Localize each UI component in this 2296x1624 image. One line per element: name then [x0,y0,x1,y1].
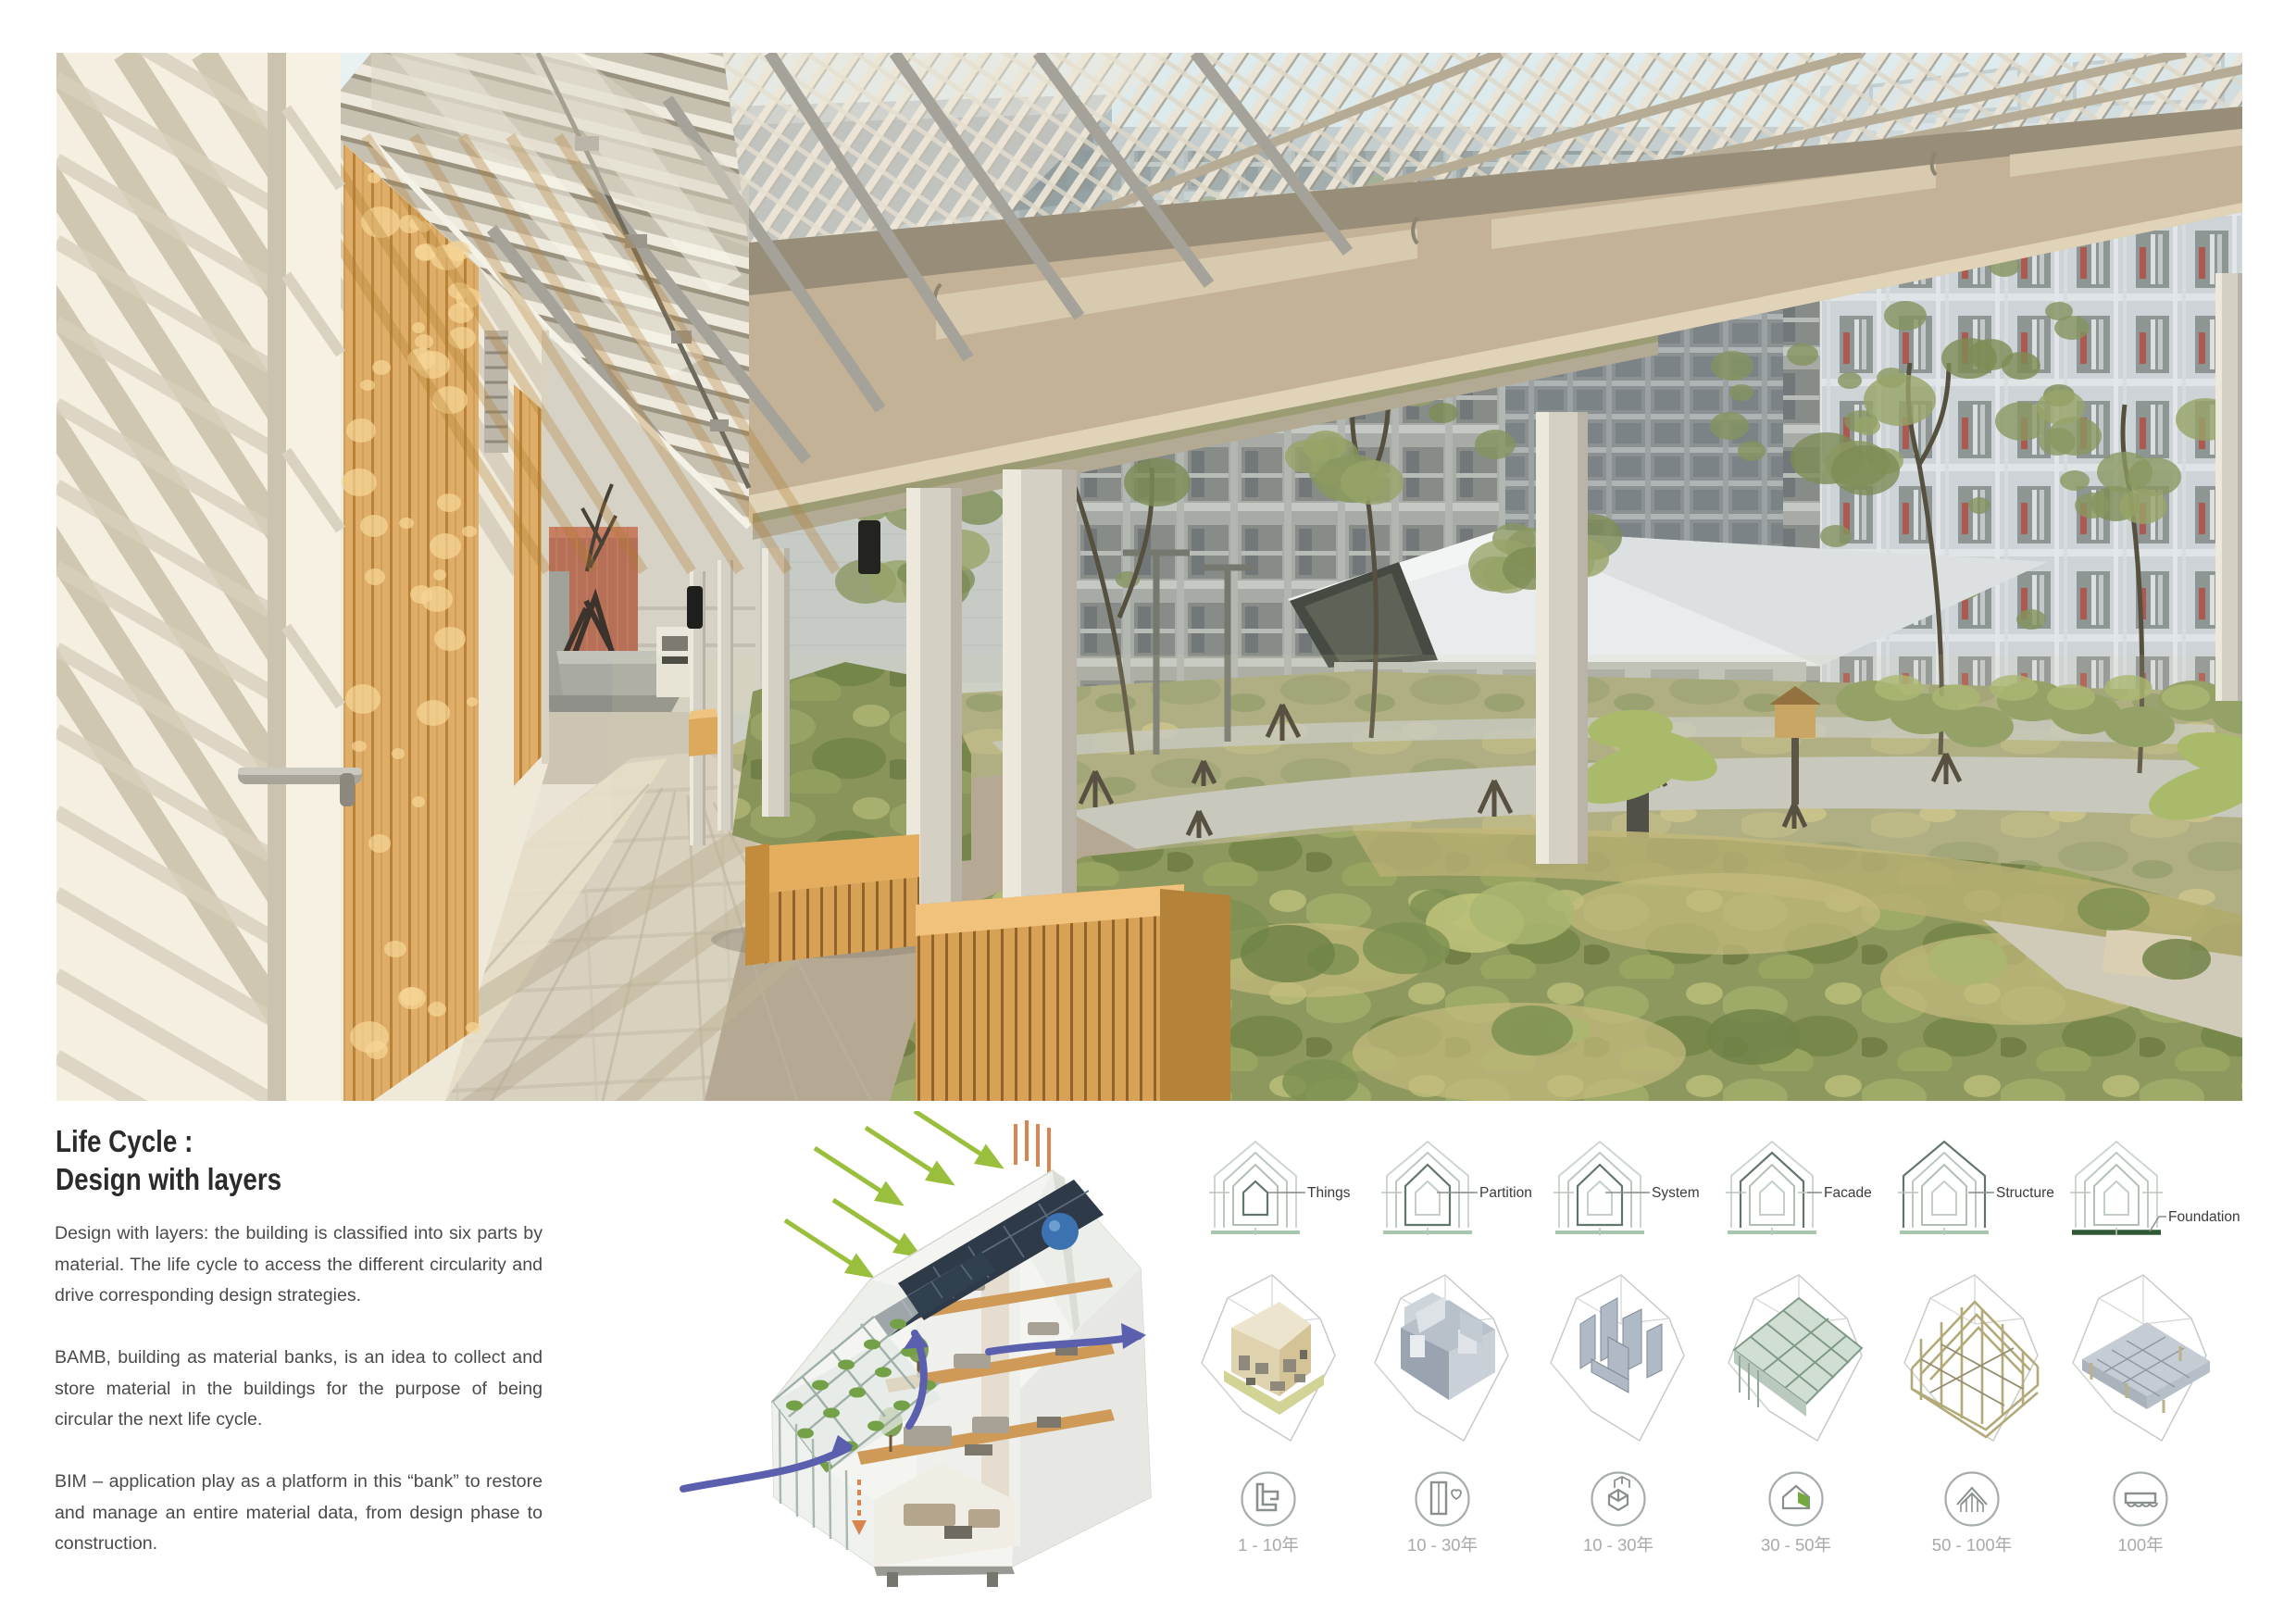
svg-text:Structure: Structure [1996,1185,2054,1201]
svg-text:Foundation: Foundation [2168,1209,2240,1225]
svg-text:Facade: Facade [1824,1185,1872,1201]
svg-text:Things: Things [1307,1185,1351,1201]
svg-text:System: System [1652,1185,1700,1201]
svg-text:Partition: Partition [1479,1185,1532,1201]
